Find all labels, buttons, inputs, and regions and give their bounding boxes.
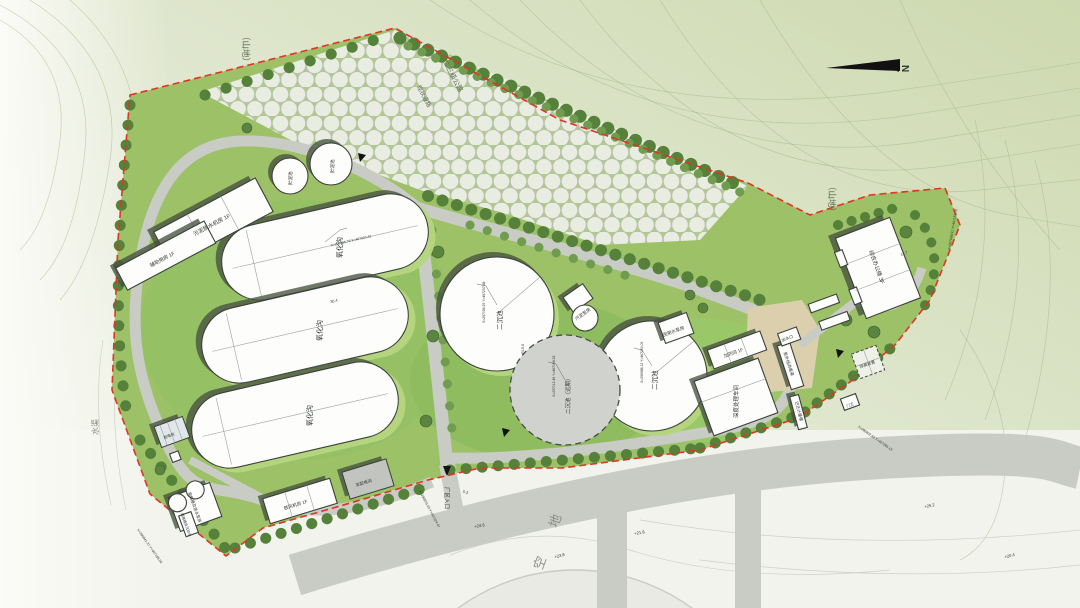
label-deep-treatment: 深度处理车间 bbox=[732, 385, 740, 418]
label-sludge-tank-a: 贮泥池 bbox=[287, 171, 294, 185]
future-clarifier bbox=[510, 335, 620, 445]
label-canal: 水渠 bbox=[90, 419, 100, 435]
site-plan-canvas: N 污泥脱水机房 1F 辅助用房 1F 贮泥池 贮泥池 氧化沟 氧化沟 氧化沟 … bbox=[0, 0, 1080, 608]
coord-label: X=297036.25 Y=467237.88 bbox=[482, 281, 486, 323]
label-clarifier-future: 二沉池（远期） bbox=[564, 375, 572, 414]
label-ditch-b: 氧化沟 bbox=[315, 320, 324, 341]
label-clarifier-b: 二沉池 bbox=[650, 370, 659, 390]
coord-label: X=297012.46 Y=467198.33 bbox=[552, 355, 556, 397]
north-label: N bbox=[899, 65, 910, 72]
label-mountain-e: （山地） bbox=[827, 182, 837, 216]
label-mountain-nw: （山地） bbox=[241, 32, 251, 66]
coord-label: X=296988.12 Y=467260.05 bbox=[640, 341, 644, 383]
label-entrance: 厂区入口 bbox=[443, 487, 450, 509]
dim-label: R15.0 bbox=[521, 344, 525, 354]
label-clarifier-a: 二沉池 bbox=[495, 310, 504, 330]
label-ditch-c: 氧化沟 bbox=[305, 405, 314, 426]
label-sludge-tank-b: 贮泥池 bbox=[329, 159, 336, 173]
